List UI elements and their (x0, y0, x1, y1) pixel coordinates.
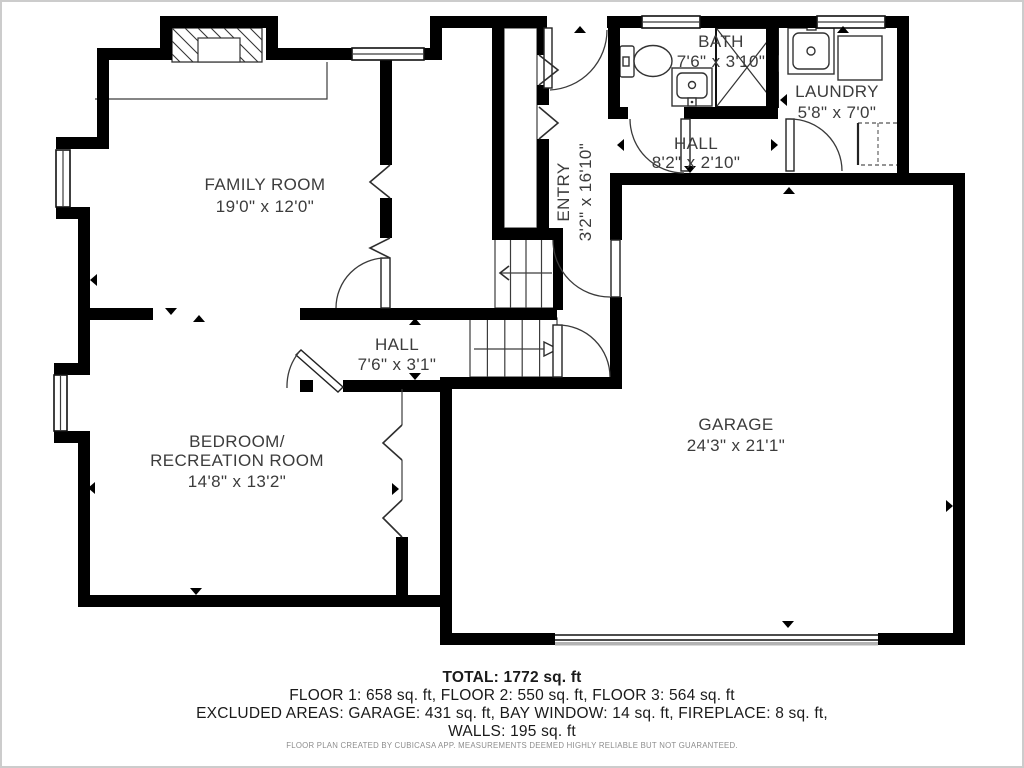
bedroom-label-line2: RECREATION ROOM (150, 451, 324, 470)
front-door (544, 28, 607, 90)
garage-label: GARAGE (698, 415, 773, 434)
soffit-line (95, 62, 327, 99)
floor-areas-text: FLOOR 1: 658 sq. ft, FLOOR 2: 550 sq. ft… (289, 687, 735, 704)
family-room-dims: 19'0" x 12'0" (216, 197, 314, 216)
closet (504, 28, 537, 228)
garage-door (555, 633, 878, 646)
bath-dims: 7'6" x 3'10" (677, 52, 766, 71)
laundry-door (786, 119, 842, 171)
floor-plan-drawing: FAMILY ROOM 19'0" x 12'0" ENTRY 3'2" x 1… (0, 0, 1024, 768)
stairs-upper-flight (495, 238, 557, 308)
excluded-areas-text-line2: WALLS: 195 sq. ft (448, 723, 576, 740)
hall-upper-label: HALL (674, 134, 718, 153)
stairs-down-arrow (474, 342, 558, 356)
entry-label: ENTRY (554, 162, 573, 221)
hall-lower-dims: 7'6" x 3'1" (358, 355, 437, 374)
dryer-dashed-icon (858, 123, 900, 165)
garage-dims: 24'3" x 21'1" (687, 436, 785, 455)
bedroom-dims: 14'8" x 13'2" (188, 472, 286, 491)
laundry-label: LAUNDRY (795, 82, 879, 101)
window-bath (642, 16, 700, 28)
bath-sink-icon (672, 68, 712, 106)
total-area-text: TOTAL: 1772 sq. ft (442, 669, 581, 686)
washer-icon (838, 36, 882, 80)
toilet-icon (620, 46, 672, 78)
bedroom-door (287, 350, 343, 392)
window-family-room-top (352, 48, 424, 60)
opening-chevrons (370, 55, 558, 537)
garage-entry-door (553, 240, 620, 297)
family-room-label: FAMILY ROOM (205, 175, 326, 194)
under-stair-door (553, 325, 610, 377)
hall-upper-dims: 8'2" x 2'10" (652, 153, 741, 172)
family-room-door (336, 258, 390, 308)
disclaimer-text: FLOOR PLAN CREATED BY CUBICASA APP. MEAS… (286, 741, 738, 750)
entry-dims: 3'2" x 16'10" (576, 143, 595, 241)
excluded-areas-text-line1: EXCLUDED AREAS: GARAGE: 431 sq. ft, BAY … (196, 705, 828, 722)
stairs-lower-flight (470, 318, 558, 377)
bath-label: BATH (698, 32, 744, 51)
floor-plan-page: FAMILY ROOM 19'0" x 12'0" ENTRY 3'2" x 1… (0, 0, 1024, 768)
fireplace-icon (172, 28, 262, 62)
bedroom-label-line1: BEDROOM/ (189, 432, 285, 451)
bay-window-upper (56, 150, 70, 207)
window-laundry (817, 16, 885, 28)
bay-window-lower (54, 375, 67, 431)
hall-lower-label: HALL (375, 335, 419, 354)
laundry-dims: 5'8" x 7'0" (798, 103, 877, 122)
area-summary: TOTAL: 1772 sq. ft FLOOR 1: 658 sq. ft, … (196, 669, 828, 750)
